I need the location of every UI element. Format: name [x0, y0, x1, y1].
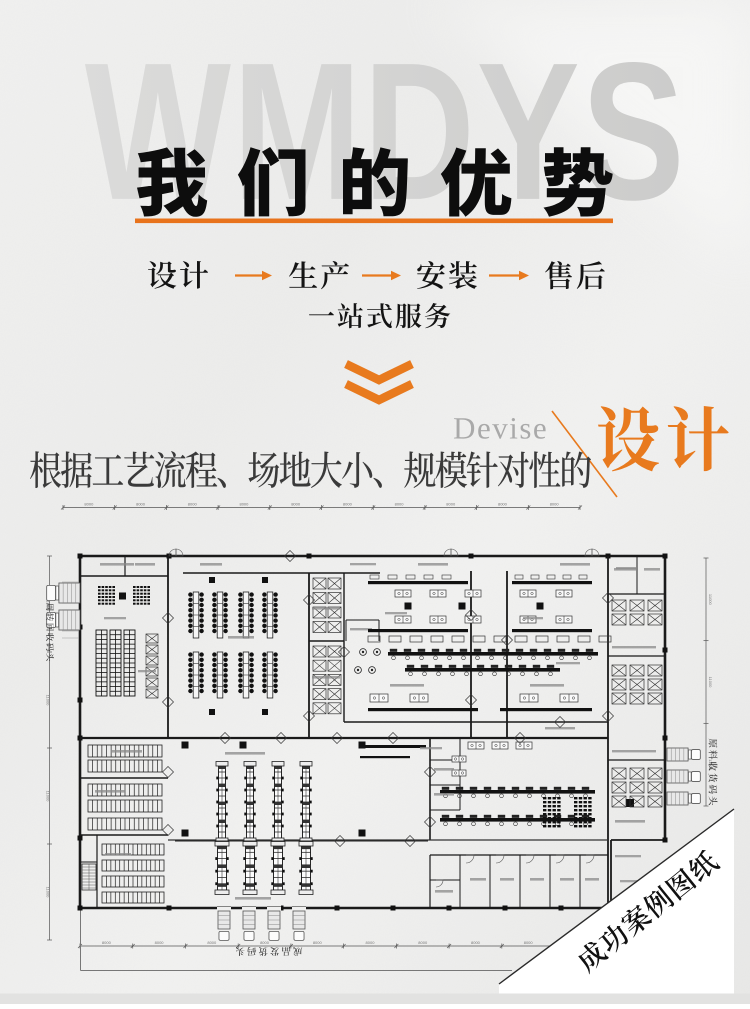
svg-text:8000: 8000 [136, 502, 146, 507]
svg-text:8000: 8000 [366, 940, 376, 945]
svg-text:11000: 11000 [46, 791, 51, 803]
svg-text:8000: 8000 [446, 502, 456, 507]
svg-text:8000: 8000 [188, 502, 198, 507]
svg-text:8000: 8000 [313, 940, 323, 945]
svg-text:8000: 8000 [471, 940, 481, 945]
svg-text:8000: 8000 [418, 940, 428, 945]
svg-text:8000: 8000 [239, 502, 249, 507]
svg-text:8000: 8000 [343, 502, 353, 507]
svg-text:8000: 8000 [102, 940, 112, 945]
svg-text:8000: 8000 [291, 502, 301, 507]
svg-text:11000: 11000 [46, 695, 51, 707]
svg-text:11000: 11000 [46, 887, 51, 899]
svg-text:8000: 8000 [84, 502, 94, 507]
svg-text:8000: 8000 [155, 940, 165, 945]
svg-text:8000: 8000 [524, 940, 534, 945]
svg-text:8000: 8000 [207, 940, 217, 945]
svg-text:11000: 11000 [708, 677, 713, 689]
svg-text:8000: 8000 [498, 502, 508, 507]
svg-text:8000: 8000 [395, 502, 405, 507]
svg-text:8000: 8000 [550, 502, 560, 507]
svg-text:11000: 11000 [708, 594, 713, 606]
svg-text:8000: 8000 [260, 940, 270, 945]
